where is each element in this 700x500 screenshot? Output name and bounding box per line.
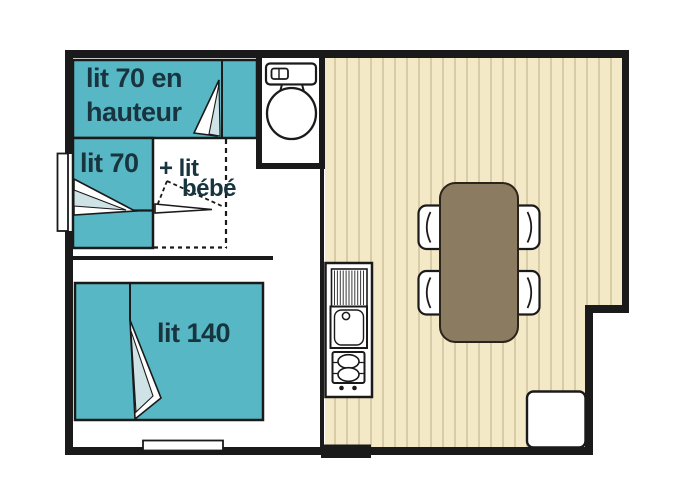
bunk-bed-label-line2: hauteur [86,99,182,126]
partition-wall [73,256,273,260]
storage-cabinet [527,392,586,448]
baby-bed-label-line2: bébé [182,177,236,201]
window-marker-bottom [143,441,223,451]
entrance-threshold [321,445,371,459]
toilet-icon [266,64,316,140]
floor-plan: lit 70 en hauteur lit 70 + lit bébé lit … [0,0,700,500]
window-marker-left [58,154,75,232]
corridor-wall [320,169,324,447]
dining-table [440,183,518,342]
kitchen-drainboard-icon [332,269,368,307]
kitchen-unit [326,263,373,397]
bunk-bed-label-line1: lit 70 en [86,65,182,92]
double-bed-label: lit 140 [157,320,230,347]
double-bed [75,283,263,420]
kitchen-sink-icon [331,307,368,349]
single-bed-label: lit 70 [80,150,139,177]
